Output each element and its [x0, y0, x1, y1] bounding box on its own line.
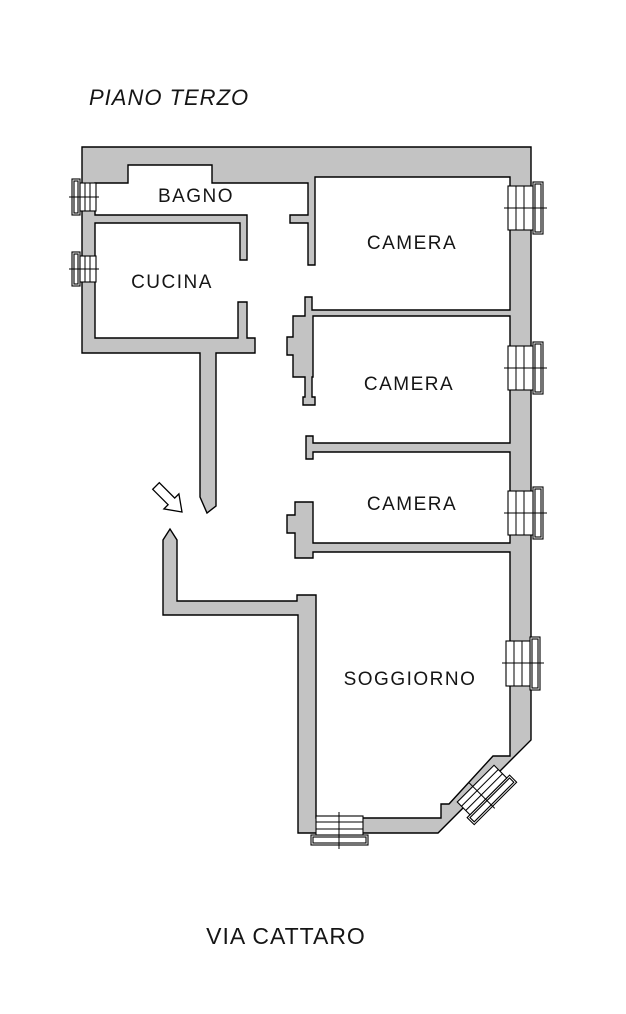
- room-label-cucina: CUCINA: [131, 272, 213, 293]
- floorplan-drawing: PIANO TERZO: [0, 0, 626, 1014]
- camera-1-window: [504, 182, 547, 234]
- wall-structure: [82, 147, 531, 833]
- bagno-window: [69, 179, 99, 215]
- soggiorno-bottom-window: [311, 812, 368, 849]
- room-label-camera-2: CAMERA: [364, 374, 454, 395]
- room-label-camera-1: CAMERA: [367, 233, 457, 254]
- camera-2-window: [504, 342, 547, 394]
- room-label-soggiorno: SOGGIORNO: [344, 669, 477, 690]
- entrance-arrow-icon: [153, 483, 182, 512]
- page-title: PIANO TERZO: [89, 85, 249, 110]
- street-label: VIA CATTARO: [206, 923, 366, 949]
- floorplan-page: PIANO TERZO: [0, 0, 626, 1014]
- camera-3-window: [504, 487, 547, 539]
- room-label-camera-3: CAMERA: [367, 494, 457, 515]
- room-label-bagno: BAGNO: [158, 186, 234, 207]
- cucina-window: [69, 252, 99, 286]
- soggiorno-side-window: [502, 637, 544, 690]
